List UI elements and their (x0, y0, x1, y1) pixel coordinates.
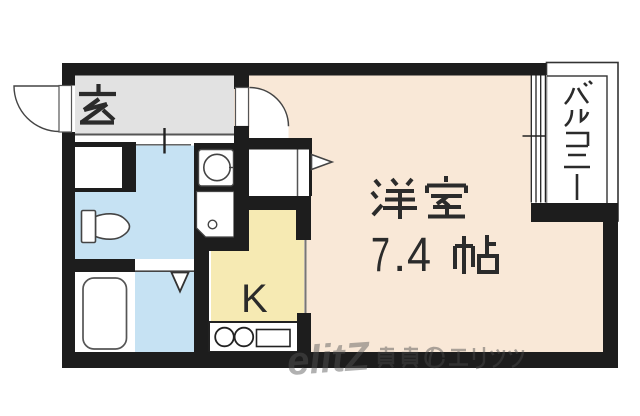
svg-text:.: . (393, 229, 406, 282)
svg-text:elitZ: elitZ (286, 334, 373, 384)
svg-text:4: 4 (407, 229, 431, 282)
svg-text:K: K (241, 277, 268, 321)
svg-text:7: 7 (371, 229, 390, 282)
